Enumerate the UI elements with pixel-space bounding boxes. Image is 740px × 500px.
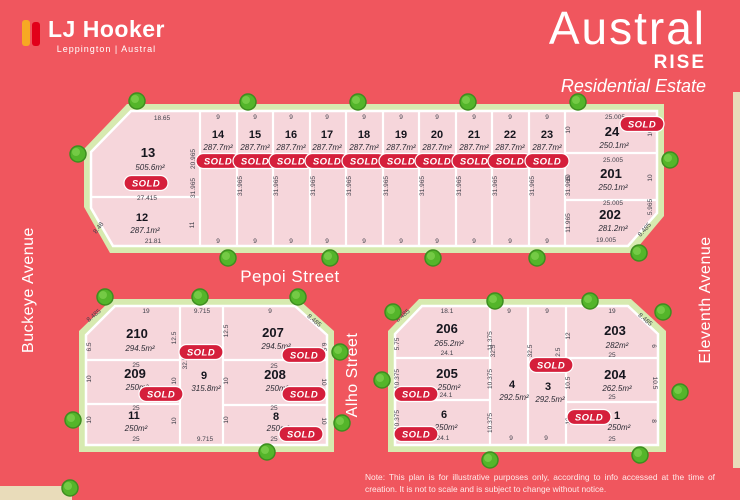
dim-label: 5.965 [647,198,654,215]
dim-label: 24.1 [437,435,450,442]
svg-text:SOLD: SOLD [533,157,561,168]
sold-badge-8: SOLD [279,427,323,442]
lot-3-area: 292.5m² [534,395,565,404]
dim-label: 31.965 [190,178,197,198]
dim-label: 31.965 [419,176,426,196]
lot-8-number: 8 [273,411,279,423]
dim-label: 19 [142,308,150,315]
lot-11-area: 250m² [124,424,148,433]
dim-label: 11.965 [565,213,572,233]
dim-label: 9 [253,114,257,121]
svg-text:SOLD: SOLD [496,157,524,168]
tree-icon [290,289,306,305]
svg-text:SOLD: SOLD [313,157,341,168]
sold-badge-207: SOLD [282,348,326,363]
svg-text:SOLD: SOLD [387,157,415,168]
tree-icon [482,452,498,468]
lot-15-number: 15 [249,129,261,141]
sold-badge-9: SOLD [179,345,223,360]
tree-icon [655,304,671,320]
lot-13-area: 505.6m² [135,163,165,172]
lot-3-number: 3 [545,381,551,393]
dim-label: 9 [268,308,272,315]
dim-label: 10 [223,377,230,385]
tree-icon [350,94,366,110]
lot-6-number: 6 [441,409,447,421]
lot-205-number: 205 [436,366,458,381]
dim-label: 9 [289,238,293,245]
dim-label: 9 [325,114,329,121]
sold-badge-1: SOLD [567,410,611,425]
lot-210-number: 210 [126,326,148,341]
lot-23-number: 23 [541,129,553,141]
dim-label: 25 [270,405,278,412]
dim-label: 31.965 [492,176,499,196]
lot-207-number: 207 [262,325,284,340]
dim-label: 19 [608,308,616,315]
street-label-pepoi: Pepoi Street [240,267,340,286]
dim-label: 9 [508,238,512,245]
dim-label: 9 [508,114,512,121]
dim-label: 12.5 [223,324,230,337]
dim-label: 6.5 [86,342,93,351]
svg-text:SOLD: SOLD [290,351,318,362]
svg-text:SOLD: SOLD [287,430,315,441]
tree-icon [332,344,348,360]
lot-19-number: 19 [395,129,407,141]
lot-16-number: 16 [285,129,297,141]
lot-15-area: 287.7m² [239,143,270,152]
dim-label: 21.81 [145,238,162,245]
svg-text:SOLD: SOLD [575,413,603,424]
svg-text:SOLD: SOLD [132,179,160,190]
dim-label: 10.375 [487,413,494,433]
lot-17-area: 287.7m² [311,143,342,152]
dim-label: 25 [608,394,616,401]
svg-text:SOLD: SOLD [537,361,565,372]
dim-label: 9 [545,114,549,121]
sold-badge-205: SOLD [394,387,438,402]
dim-label: 9 [362,114,366,121]
street-label-eleventh: Eleventh Avenue [697,236,714,363]
lot-201-number: 201 [600,166,622,181]
lot-20-number: 20 [431,129,443,141]
disclaimer-line2: creation. It is not to scale and is subj… [365,483,715,495]
lot-18-number: 18 [358,129,370,141]
dim-label: 9 [472,238,476,245]
lot-203-number: 203 [604,323,626,338]
bottom-left-road-strip [0,486,72,500]
lot-24-area: 250.1m² [598,141,629,150]
dim-label: 25 [270,363,278,370]
sold-badge-208: SOLD [282,387,326,402]
svg-text:SOLD: SOLD [460,157,488,168]
dim-label: 9 [362,238,366,245]
dim-label: 18.65 [154,115,171,122]
dim-label: 9 [509,435,513,442]
svg-text:SOLD: SOLD [628,120,656,131]
lot-12-number: 12 [136,212,148,224]
lot-203-area: 282m² [605,341,629,350]
dim-label: 24.1 [441,350,454,357]
dim-label: 9 [289,114,293,121]
dim-label: 10.5 [565,376,572,389]
lot-21-area: 287.7m² [458,143,489,152]
dim-label: 9.715 [194,308,211,315]
lot-19-area: 287.7m² [385,143,416,152]
tree-icon [220,250,236,266]
dim-label: 9 [399,114,403,121]
dim-label: 25.005 [603,157,623,164]
sold-badge-13: SOLD [124,176,168,191]
tree-icon [425,250,441,266]
tree-icon [129,93,145,109]
lot-204-number: 204 [604,367,626,382]
dim-label: 9 [399,238,403,245]
dim-label: 19.005 [596,237,616,244]
dim-label: 12.5 [171,331,178,344]
dim-label: 6 [650,344,657,348]
dim-label: 32.5 [527,344,534,357]
disclaimer-note: Note: This plan is for illustrative purp… [365,471,715,495]
lot-18-area: 287.7m² [348,143,379,152]
sold-badge-23: SOLD [525,154,569,169]
tree-icon [65,412,81,428]
tree-icon [631,245,647,261]
lot-206-number: 206 [436,321,458,336]
dim-label: 31.965 [383,176,390,196]
tree-icon [70,146,86,162]
dim-label: 10 [565,126,572,134]
svg-text:SOLD: SOLD [423,157,451,168]
dim-label: 10 [86,375,93,383]
tree-icon [662,152,678,168]
lot-16-area: 287.7m² [275,143,306,152]
dim-label: 10 [565,174,572,182]
block-top-lots-area [91,111,657,246]
tree-icon [460,94,476,110]
lot-210-area: 294.5m² [124,344,155,353]
street-label-buckeye: Buckeye Avenue [20,227,37,353]
tree-icon [97,289,113,305]
dim-label: 9 [472,114,476,121]
dim-label: 32.5 [490,344,497,357]
svg-text:SOLD: SOLD [402,390,430,401]
lot-9-number: 9 [201,370,207,382]
dim-label: 10 [320,378,327,386]
svg-text:SOLD: SOLD [241,157,269,168]
dim-label: 10.375 [394,369,401,389]
dim-label: 24.1 [440,392,453,399]
tree-icon [322,250,338,266]
right-road-strip [733,92,740,468]
dim-label: 25.005 [603,200,623,207]
dim-label: 27.415 [137,195,157,202]
svg-text:SOLD: SOLD [350,157,378,168]
lot-14-number: 14 [212,129,225,141]
dim-label: 31.965 [529,176,536,196]
tree-icon [192,289,208,305]
dim-label: 12 [565,332,572,340]
dim-label: 18.1 [441,308,454,315]
lot-22-area: 287.7m² [494,143,525,152]
dim-label: 10 [320,417,327,425]
disclaimer-line1: Note: This plan is for illustrative purp… [365,471,715,483]
lot-13-number: 13 [141,145,155,160]
sold-badge-209: SOLD [139,387,183,402]
dim-label: 9 [216,238,220,245]
lot-4-area: 292.5m² [498,393,529,402]
lot-4-number: 4 [509,379,516,391]
lot-21-number: 21 [468,129,480,141]
street-label-alho: Alho Street [344,333,361,418]
dim-label: 25 [132,362,140,369]
dim-label: 10 [171,417,178,425]
tree-icon [672,384,688,400]
svg-text:SOLD: SOLD [290,390,318,401]
tree-icon [487,293,503,309]
tree-icon [334,415,350,431]
dim-label: 10.375 [487,369,494,389]
tree-icon [374,372,390,388]
lot-1-number: 1 [614,410,620,422]
tree-icon [582,293,598,309]
dim-label: 11 [189,221,196,228]
lot-17-number: 17 [321,129,333,141]
tree-icon [529,250,545,266]
dim-label: 9 [435,238,439,245]
tree-icon [259,444,275,460]
dim-label: 8 [650,419,657,423]
dim-label: 25 [608,352,616,359]
dim-label: 5.75 [394,337,401,350]
dim-label: 9 [545,308,549,315]
dim-label: 31.965 [273,176,280,196]
tree-icon [240,94,256,110]
dim-label: 9 [544,435,548,442]
lot-12-area: 287.1m² [129,226,160,235]
dim-label: 25 [608,436,616,443]
svg-text:SOLD: SOLD [187,348,215,359]
estate-plan: LJ Hooker Leppington | Austral Austral R… [0,0,740,500]
tree-icon [385,304,401,320]
dim-label: 10 [223,416,230,424]
sold-badge-3: SOLD [529,358,573,373]
svg-text:SOLD: SOLD [204,157,232,168]
dim-label: 9.715 [197,436,214,443]
tree-icon [632,447,648,463]
svg-text:SOLD: SOLD [147,390,175,401]
tree-icon [62,480,78,496]
dim-label: 9 [253,238,257,245]
tree-icon [570,94,586,110]
svg-text:SOLD: SOLD [277,157,305,168]
svg-text:SOLD: SOLD [402,430,430,441]
lot-23-area: 287.7m² [531,143,562,152]
lot-204-area: 262.5m² [601,384,632,393]
lot-1-area: 250m² [607,423,631,432]
lot-14-area: 287.7m² [202,143,233,152]
dim-label: 25 [132,405,140,412]
dim-label: 9 [216,114,220,121]
lot-205-area: 250m² [437,383,461,392]
dim-label: 10 [647,174,654,182]
dim-label: 9 [325,238,329,245]
dim-label: 9 [545,238,549,245]
lot-202-area: 281.2m² [597,224,628,233]
block-top [84,104,664,253]
dim-label: 31.965 [310,176,317,196]
lot-202-number: 202 [599,207,621,222]
dim-label: 10 [171,377,178,385]
dim-label: 25 [132,436,140,443]
dim-label: 31.965 [346,176,353,196]
sold-badge-6: SOLD [394,427,438,442]
dim-label: 31.965 [237,176,244,196]
site-plan-canvas: Pepoi Street Buckeye Avenue Eleventh Ave… [0,0,740,500]
dim-label: 25 [270,436,278,443]
dim-label: 9 [507,308,511,315]
lot-20-area: 287.7m² [421,143,452,152]
dim-label: 10.5 [651,377,658,390]
dim-label: 9 [435,114,439,121]
lot-201-area: 250.1m² [597,183,628,192]
dim-label: 10 [86,416,93,424]
lot-22-number: 22 [504,129,516,141]
sold-badge-24: SOLD [620,117,664,132]
lot-24-number: 24 [605,124,620,139]
lot-9-area: 315.8m² [191,384,221,393]
dim-label: 31.965 [456,176,463,196]
lot-206-area: 265.2m² [433,339,464,348]
